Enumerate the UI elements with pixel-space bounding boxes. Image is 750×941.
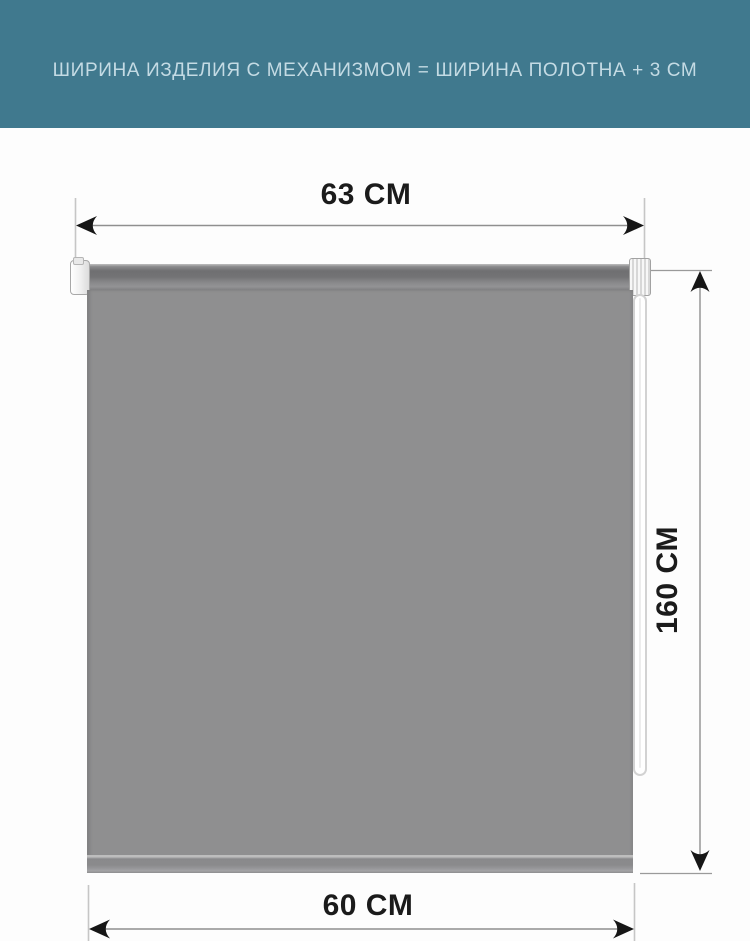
bottom-width-label: 60 CM xyxy=(268,889,468,923)
roller-tube xyxy=(80,264,636,291)
product-dimension-diagram: ШИРИНА ИЗДЕЛИЯ С МЕХАНИЗМОМ = ШИРИНА ПОЛ… xyxy=(0,0,750,941)
blind-fabric-panel xyxy=(87,290,633,873)
height-label: 160 CM xyxy=(648,500,688,660)
bead-chain xyxy=(633,294,647,776)
top-width-label: 63 CM xyxy=(266,178,466,212)
bottom-weight-bar xyxy=(87,855,633,873)
